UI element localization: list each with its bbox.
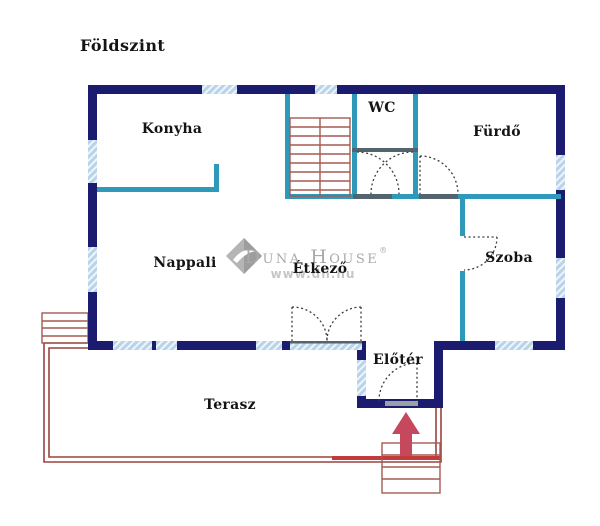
kitchen-counter-wall [97, 187, 219, 192]
door-arc [327, 307, 361, 341]
entry-door-threshold [385, 401, 418, 406]
door-opening [353, 194, 392, 199]
door-arc [379, 363, 417, 401]
window [357, 360, 366, 396]
room-label-terasz: Terasz [204, 397, 256, 413]
door-arc [420, 156, 458, 194]
door-arc [292, 307, 327, 341]
room-label-wc: WC [368, 100, 395, 116]
room-label-nappali: Nappali [153, 255, 216, 271]
wc-left-wall [352, 94, 357, 199]
room-label-etkezo: Étkező [293, 261, 348, 277]
registered-mark: ® [379, 246, 387, 255]
window [256, 341, 282, 350]
window [202, 85, 237, 94]
room-label-eloter: Előtér [373, 352, 423, 368]
exterior-steps [42, 313, 88, 343]
window [88, 140, 97, 183]
outer-wall-right [556, 85, 565, 350]
room-label-konyha: Konyha [142, 121, 203, 137]
outer-wall-left [88, 85, 97, 350]
window [556, 155, 565, 190]
entry-recess-right-wall [434, 341, 443, 408]
entrance-arrow-icon [392, 412, 420, 456]
door-opening [460, 236, 465, 271]
window [315, 85, 337, 94]
wc-right-wall [413, 94, 418, 199]
kitchen-counter-wall-stub [214, 164, 219, 192]
room-label-furdo: Fürdő [473, 124, 521, 140]
window [495, 341, 533, 350]
door-arc [357, 152, 399, 194]
door-opening [419, 194, 458, 199]
wc-bottom-wall [352, 148, 418, 152]
stairwell-left-wall [285, 94, 290, 199]
window [156, 341, 177, 350]
window [88, 247, 97, 292]
page-title: Földszint [80, 36, 165, 55]
door-arc [371, 152, 413, 194]
floor-plan: Duna House® www.dh.hu Földszint Konyha W… [0, 0, 600, 526]
interior-stairs [290, 118, 350, 196]
french-door-lintel [290, 341, 362, 344]
french-door-glass [290, 343, 362, 350]
window [113, 341, 152, 350]
window [556, 258, 565, 298]
room-label-szoba: Szoba [485, 250, 533, 266]
